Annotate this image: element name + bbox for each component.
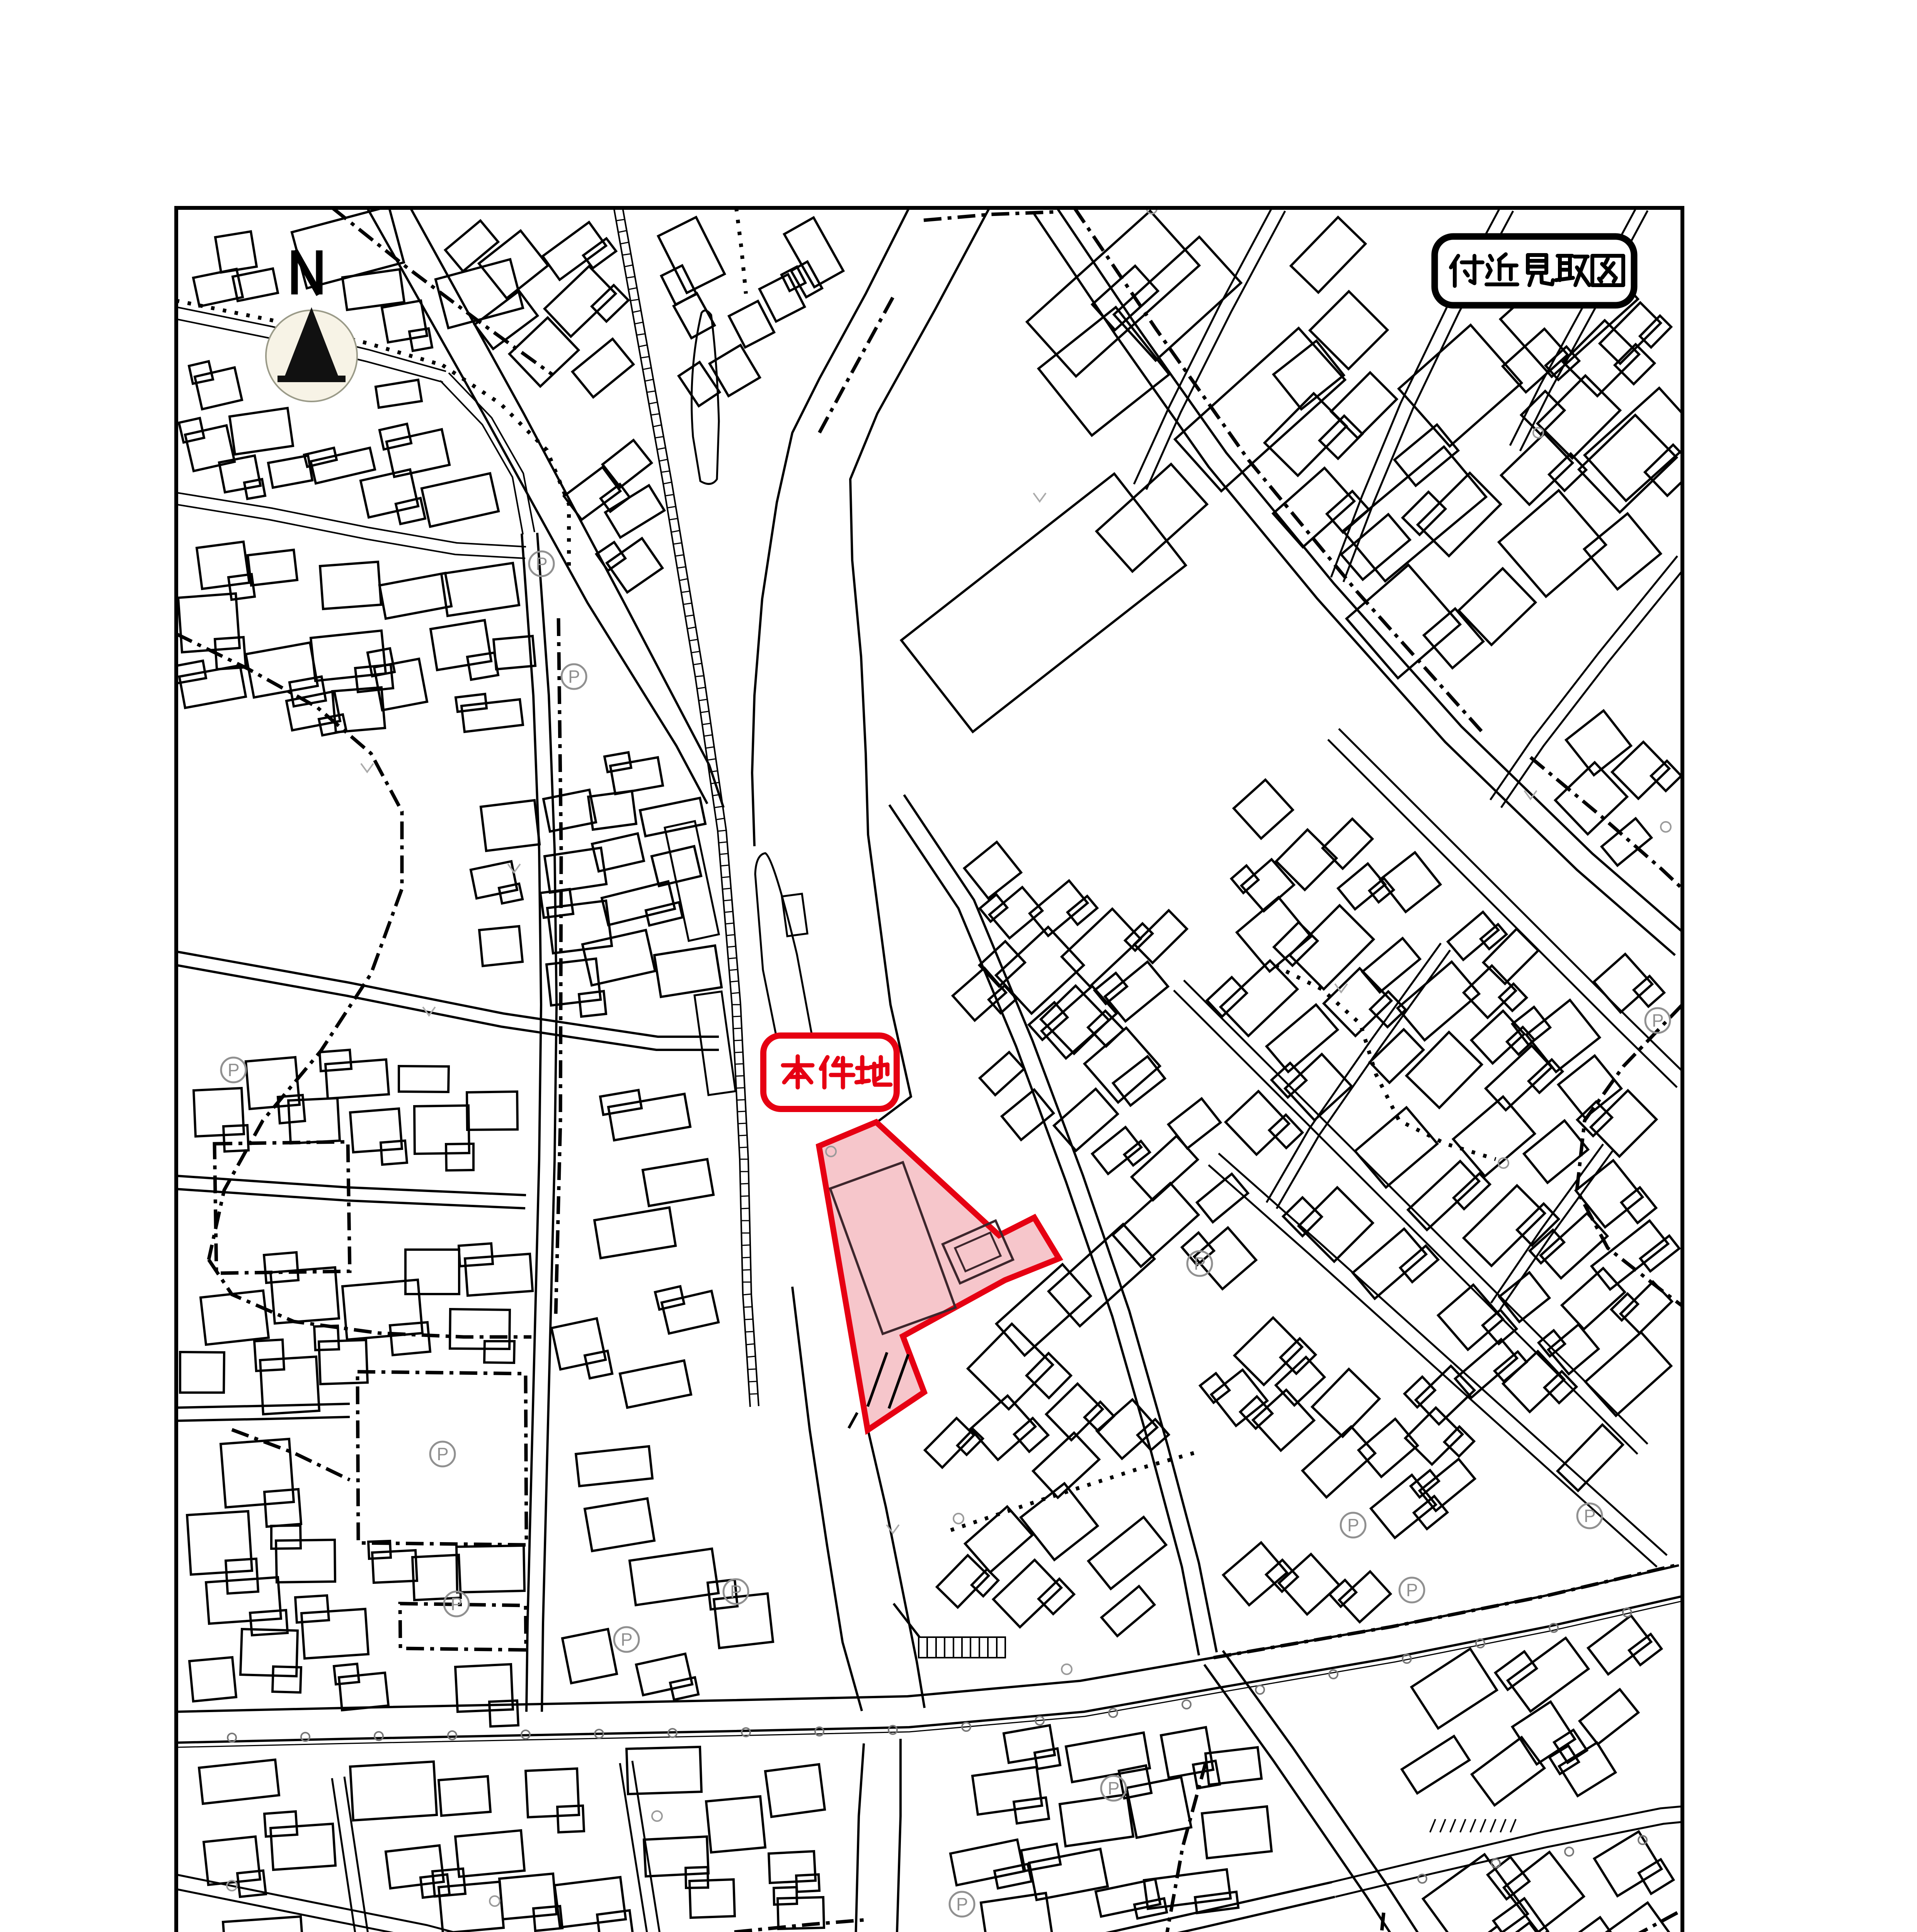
svg-text:P: P <box>1584 1506 1596 1526</box>
svg-text:P: P <box>228 1060 240 1080</box>
svg-text:P: P <box>536 554 548 574</box>
svg-text:P: P <box>621 1629 633 1650</box>
svg-text:P: P <box>451 1594 463 1614</box>
svg-text:P: P <box>1108 1778 1120 1798</box>
svg-text:P: P <box>1347 1515 1359 1535</box>
svg-text:P: P <box>956 1894 968 1914</box>
svg-text:P: P <box>1406 1580 1418 1600</box>
svg-text:P: P <box>568 667 580 687</box>
svg-text:P: P <box>730 1582 742 1602</box>
svg-text:P: P <box>1652 1010 1664 1031</box>
svg-text:P: P <box>1194 1253 1206 1274</box>
svg-text:P: P <box>437 1444 449 1464</box>
